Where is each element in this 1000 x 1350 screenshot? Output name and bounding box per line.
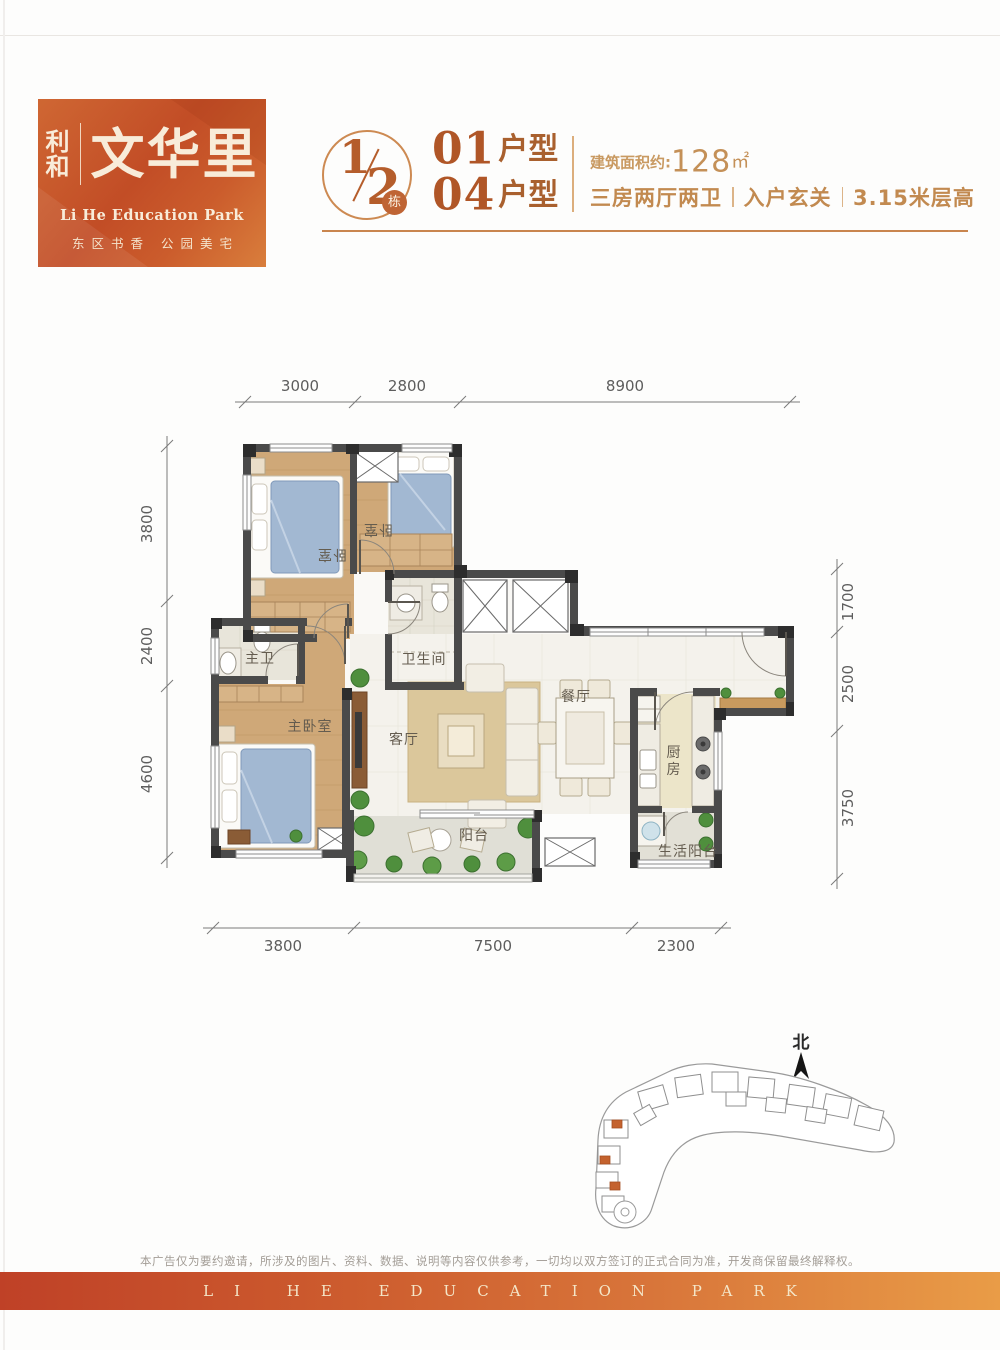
logo-english-subtitle: Li He Education Park <box>38 207 266 224</box>
unit-type-04: 04户型 <box>432 172 558 218</box>
site-plan: 北 <box>565 1015 915 1250</box>
poster-page: 利 和 文华里 Li He Education Park 东区书香 公园美宅 1… <box>0 0 1000 1350</box>
logo-main-row: 利 和 文华里 <box>38 123 266 185</box>
feature-foyer: 入户玄关 <box>744 186 832 210</box>
feature-rooms: 三房两厅两卫 <box>590 186 722 210</box>
kitchen-label-char-1: 厨 <box>667 745 682 761</box>
kitchen-label-char-2: 房 <box>667 762 682 778</box>
logo-tagline: 东区书香 公园美宅 <box>38 233 266 252</box>
footer-banner: LI HE EDUCATION PARK <box>0 1272 1000 1310</box>
footer-banner-text: LI HE EDUCATION PARK <box>182 1282 818 1300</box>
balcony-label: 阳台 <box>459 828 489 844</box>
header-vertical-divider <box>572 136 574 212</box>
dim-left-2: 2400 <box>140 627 156 665</box>
service-balcony-label: 生活阳台 <box>658 844 718 860</box>
site-boundary <box>596 1064 895 1228</box>
dim-right-3: 3750 <box>839 789 857 827</box>
dim-top-2: 2800 <box>388 377 426 395</box>
north-arrow-icon <box>793 1052 809 1079</box>
brand-logo: 利 和 文华里 Li He Education Park 东区书香 公园美宅 <box>38 99 266 267</box>
north-label: 北 <box>793 1033 810 1053</box>
site-landmark-circle-inner <box>621 1208 629 1216</box>
bedroom-1-label: 卧室 <box>317 546 347 563</box>
logo-facet-decoration <box>38 187 148 267</box>
unit-number: 04 <box>432 170 495 221</box>
top-divider-line <box>0 35 1000 36</box>
feature-height: 3.15米层高 <box>853 186 975 210</box>
area-label: 建筑面积约: <box>590 154 671 172</box>
dim-right-2: 2500 <box>839 665 857 703</box>
dim-bottom-3: 2300 <box>657 937 695 955</box>
floor-plan: 卧室 卧室 卫生间 主卫 主卧室 客厅 餐厅 厨 房 阳台 生活阳台 <box>140 340 870 990</box>
area-unit: ㎡ <box>731 152 749 173</box>
feature-divider <box>732 187 734 207</box>
living-room-label: 客厅 <box>389 731 419 748</box>
feature-divider <box>842 187 844 207</box>
dim-left-3: 4600 <box>140 755 156 793</box>
project-name: 文华里 <box>91 127 259 181</box>
unit-suffix: 户型 <box>498 178 558 213</box>
area-value: 128 <box>671 145 731 180</box>
brand-left-characters: 利 和 <box>46 129 70 179</box>
bedroom-1-furniture <box>247 458 350 632</box>
feature-line: 三房两厅两卫入户玄关3.15米层高 <box>590 182 975 212</box>
dim-top-3: 8900 <box>606 377 644 395</box>
master-bedroom-label: 主卧室 <box>288 718 333 735</box>
header-underline <box>322 230 968 232</box>
unit-specs: 建筑面积约:128㎡ 三房两厅两卫入户玄关3.15米层高 <box>590 146 975 212</box>
bedroom-2-label: 卧室 <box>363 521 393 538</box>
dim-left-1: 3800 <box>140 505 156 543</box>
left-edge-line <box>3 0 5 1350</box>
brand-char-2: 和 <box>46 154 70 179</box>
master-bath-label: 主卫 <box>245 651 275 667</box>
dim-bottom-1: 3800 <box>264 937 302 955</box>
building-unit-badge: 栋 <box>382 190 407 215</box>
dim-top-1: 3000 <box>281 377 319 395</box>
unit-suffix: 户型 <box>498 132 558 167</box>
unit-type-list: 01户型 04户型 <box>432 126 558 218</box>
bathroom-label: 卫生间 <box>402 652 447 668</box>
unit-number: 01 <box>432 124 495 175</box>
building-number-circle: 1 2 栋 <box>322 130 412 220</box>
logo-divider-line <box>80 123 81 185</box>
brand-char-1: 利 <box>46 129 70 154</box>
dim-right-1: 1700 <box>839 583 857 621</box>
dining-room-label: 餐厅 <box>561 689 591 705</box>
dim-bottom-2: 7500 <box>474 937 512 955</box>
unit-type-01: 01户型 <box>432 126 558 172</box>
disclaimer-text: 本广告仅为要约邀请，所涉及的图片、资料、数据、说明等内容仅供参考，一切均以双方签… <box>0 1253 1000 1269</box>
built-area-line: 建筑面积约:128㎡ <box>590 146 975 178</box>
